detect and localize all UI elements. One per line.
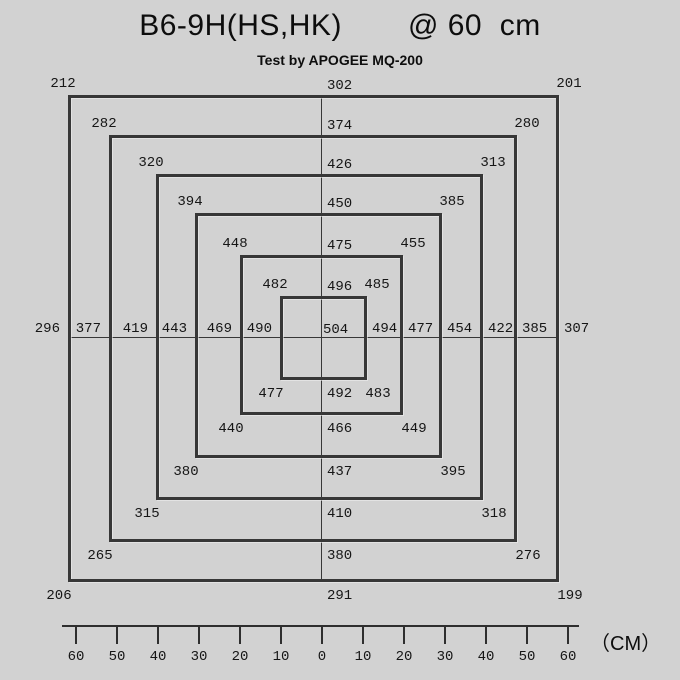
ruler-tick	[321, 625, 323, 644]
ruler-tick-label: 10	[348, 649, 378, 665]
ruler-tick-label: 40	[143, 649, 173, 665]
measurement-value: 206	[34, 589, 84, 603]
ruler-tick-label: 20	[225, 649, 255, 665]
measurement-value: 296	[10, 322, 60, 336]
ruler-tick-label: 60	[61, 649, 91, 665]
ruler-tick-label: 10	[266, 649, 296, 665]
screen: B6-9H(HS,HK) @ 60 cm Test by APOGEE MQ-2…	[0, 0, 680, 680]
ruler-tick	[444, 625, 446, 644]
ruler-tick	[239, 625, 241, 644]
measurement-value: 212	[38, 77, 88, 91]
ruler-tick-label: 0	[307, 649, 337, 665]
ruler-tick	[116, 625, 118, 644]
ruler-tick	[567, 625, 569, 644]
ruler-tick	[485, 625, 487, 644]
ruler-tick	[362, 625, 364, 644]
ruler-tick	[157, 625, 159, 644]
measurement-value: 201	[544, 77, 594, 91]
ruler-tick	[198, 625, 200, 644]
measurement-value: 302	[327, 79, 352, 93]
ruler-tick-label: 60	[553, 649, 583, 665]
ruler-tick-label: 20	[389, 649, 419, 665]
ring-square-60cm	[68, 95, 559, 582]
axis-unit-label: （CM）	[590, 627, 661, 656]
ruler-tick-label: 30	[430, 649, 460, 665]
ruler-tick-label: 40	[471, 649, 501, 665]
measurement-value: 199	[545, 589, 595, 603]
ruler-tick	[526, 625, 528, 644]
measurement-value: 291	[327, 589, 352, 603]
ruler-tick	[280, 625, 282, 644]
ruler-tick	[403, 625, 405, 644]
ruler-tick	[75, 625, 77, 644]
measurement-grid: 504 496492490494482485477483475466469477…	[0, 0, 680, 680]
measurement-value: 307	[564, 322, 589, 336]
ruler-tick-label: 30	[184, 649, 214, 665]
ruler-tick-label: 50	[102, 649, 132, 665]
ruler-tick-label: 50	[512, 649, 542, 665]
